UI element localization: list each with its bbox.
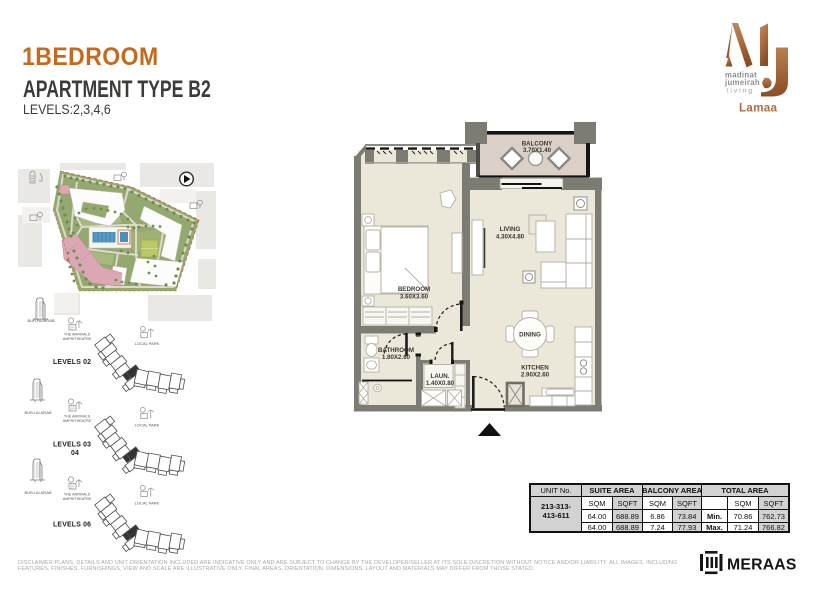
svg-text:LOCAL PARK: LOCAL PARK (135, 341, 160, 346)
svg-text:1.40X0.80: 1.40X0.80 (426, 380, 455, 387)
svg-text:THE ARRIVALS: THE ARRIVALS (64, 415, 91, 419)
svg-text:BATHROOM: BATHROOM (378, 347, 414, 354)
svg-text:2.90X2.60: 2.90X2.60 (521, 372, 550, 379)
svg-text:3.60X3.60: 3.60X3.60 (400, 294, 429, 301)
svg-text:LEVELS 03: LEVELS 03 (53, 442, 91, 449)
svg-text:LEVELS 06: LEVELS 06 (53, 522, 91, 529)
svg-text:KITCHEN: KITCHEN (521, 365, 549, 372)
svg-text:AMPHITHEATRE: AMPHITHEATRE (63, 419, 92, 423)
svg-text:LOCAL PARK: LOCAL PARK (135, 501, 160, 506)
svg-text:living: living (727, 88, 754, 95)
svg-text:LIVING: LIVING (500, 226, 521, 233)
svg-text:BURJ ALARAB: BURJ ALARAB (27, 318, 54, 323)
svg-text:AMPHITHEATRE: AMPHITHEATRE (63, 337, 92, 341)
svg-text:1.80X2.60: 1.80X2.60 (382, 354, 411, 361)
svg-text:BURJ ALARAB: BURJ ALARAB (24, 410, 51, 415)
svg-text:BEDROOM: BEDROOM (398, 286, 430, 293)
svg-text:4.30X4.80: 4.30X4.80 (496, 234, 525, 241)
svg-text:jumeirah: jumeirah (724, 78, 760, 87)
svg-text:3.70X1.40: 3.70X1.40 (523, 147, 552, 154)
svg-text:LOCAL PARK: LOCAL PARK (135, 423, 160, 428)
svg-text:BURJ ALARAB: BURJ ALARAB (24, 490, 51, 495)
svg-text:THE ARRIVALS: THE ARRIVALS (64, 333, 91, 337)
svg-text:LAUN.: LAUN. (431, 373, 450, 380)
svg-text:DINING: DINING (519, 332, 541, 339)
svg-text:04: 04 (71, 450, 79, 457)
svg-text:MERAAS: MERAAS (727, 557, 797, 574)
svg-text:Lamaa: Lamaa (739, 103, 778, 115)
svg-text:THE ARRIVALS: THE ARRIVALS (64, 493, 91, 497)
svg-text:LEVELS 02: LEVELS 02 (53, 359, 91, 366)
svg-text:AMPHITHEATRE: AMPHITHEATRE (63, 497, 92, 501)
